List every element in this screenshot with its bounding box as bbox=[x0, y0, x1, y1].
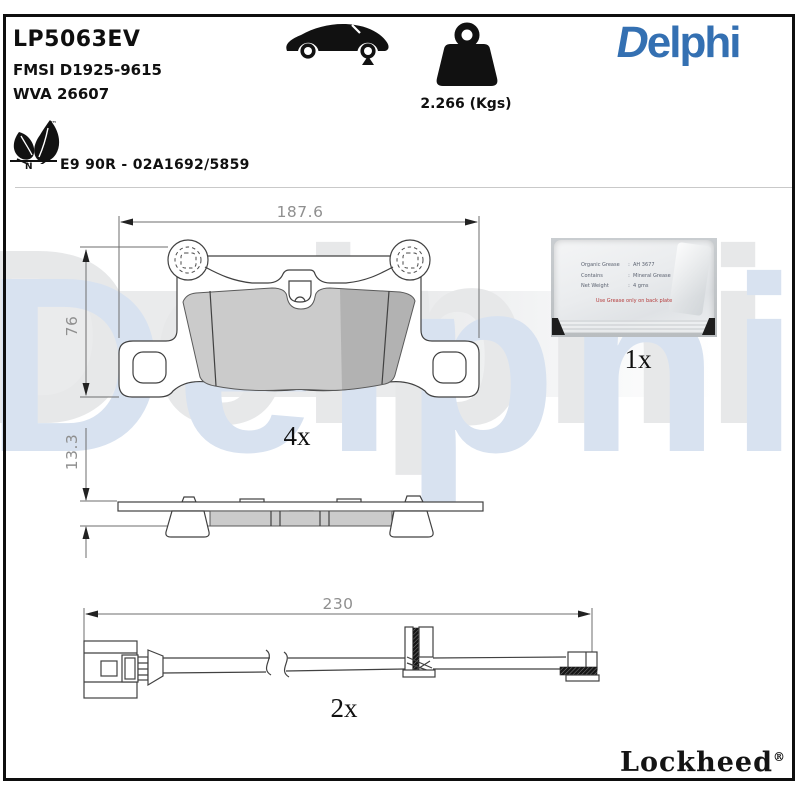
pad-side-drawing bbox=[118, 496, 483, 537]
sensor-quantity: 2x bbox=[331, 693, 359, 723]
height-dim-label: 76 bbox=[63, 316, 81, 337]
sachet-label-text: Organic Grease:AH 3677 Contains:Mineral … bbox=[581, 260, 671, 292]
wva-code: WVA 26607 bbox=[13, 85, 109, 103]
sachet-row-label: Contains bbox=[581, 271, 625, 282]
sachet-row-value: 4 gms bbox=[633, 281, 648, 292]
sachet-separator: : bbox=[625, 260, 633, 271]
car-rear-axle-icon bbox=[281, 16, 393, 68]
sachet-separator: : bbox=[625, 281, 633, 292]
weight-value: 2.266 (Kgs) bbox=[406, 96, 526, 112]
eco-underline bbox=[10, 160, 57, 162]
lockheed-logo: Lockheed® bbox=[620, 747, 786, 778]
sachet-row-value: AH 3677 bbox=[633, 260, 655, 271]
eco-letter: N bbox=[25, 162, 33, 172]
sachet-crimp-edge bbox=[557, 320, 711, 333]
lockheed-text: Lockheed bbox=[620, 747, 773, 778]
sachet-quantity: 1x bbox=[625, 344, 653, 374]
dimension-thickness: 13.3 bbox=[63, 428, 212, 558]
sachet-warning-text: Use Grease only on back plate bbox=[551, 298, 717, 304]
part-number: LP5063EV bbox=[13, 27, 140, 52]
registered-symbol: ® bbox=[773, 750, 786, 764]
sachet-row-label: Net Weight bbox=[581, 281, 625, 292]
pad-front-drawing bbox=[119, 240, 479, 397]
sachet-row-label: Organic Grease bbox=[581, 260, 625, 271]
pad-quantity: 4x bbox=[284, 421, 312, 451]
trademark-symbol: ™ bbox=[50, 120, 57, 128]
ece-approval-number: E9 90R - 02A1692/5859 bbox=[60, 157, 250, 173]
weight-icon bbox=[430, 22, 504, 92]
delphi-logo: Delphi bbox=[617, 18, 739, 68]
fmsi-code: FMSI D1925-9615 bbox=[13, 61, 162, 79]
dimension-sensor-length: 230 bbox=[84, 595, 592, 653]
sensor-length-label: 230 bbox=[322, 595, 353, 613]
width-dim-label: 187.6 bbox=[277, 203, 324, 221]
grease-sachet-photo: Organic Grease:AH 3677 Contains:Mineral … bbox=[551, 238, 717, 337]
header-separator bbox=[15, 187, 794, 188]
thickness-dim-label: 13.3 bbox=[63, 434, 81, 471]
sachet-separator: : bbox=[625, 271, 633, 282]
technical-drawing: 187.6 76 4x 13.3 230 bbox=[0, 0, 800, 800]
wear-sensor-drawing bbox=[84, 627, 599, 698]
delphi-logo-d: D bbox=[613, 18, 652, 68]
sachet-row-value: Mineral Grease bbox=[633, 271, 671, 282]
delphi-logo-rest: elphi bbox=[647, 18, 740, 67]
